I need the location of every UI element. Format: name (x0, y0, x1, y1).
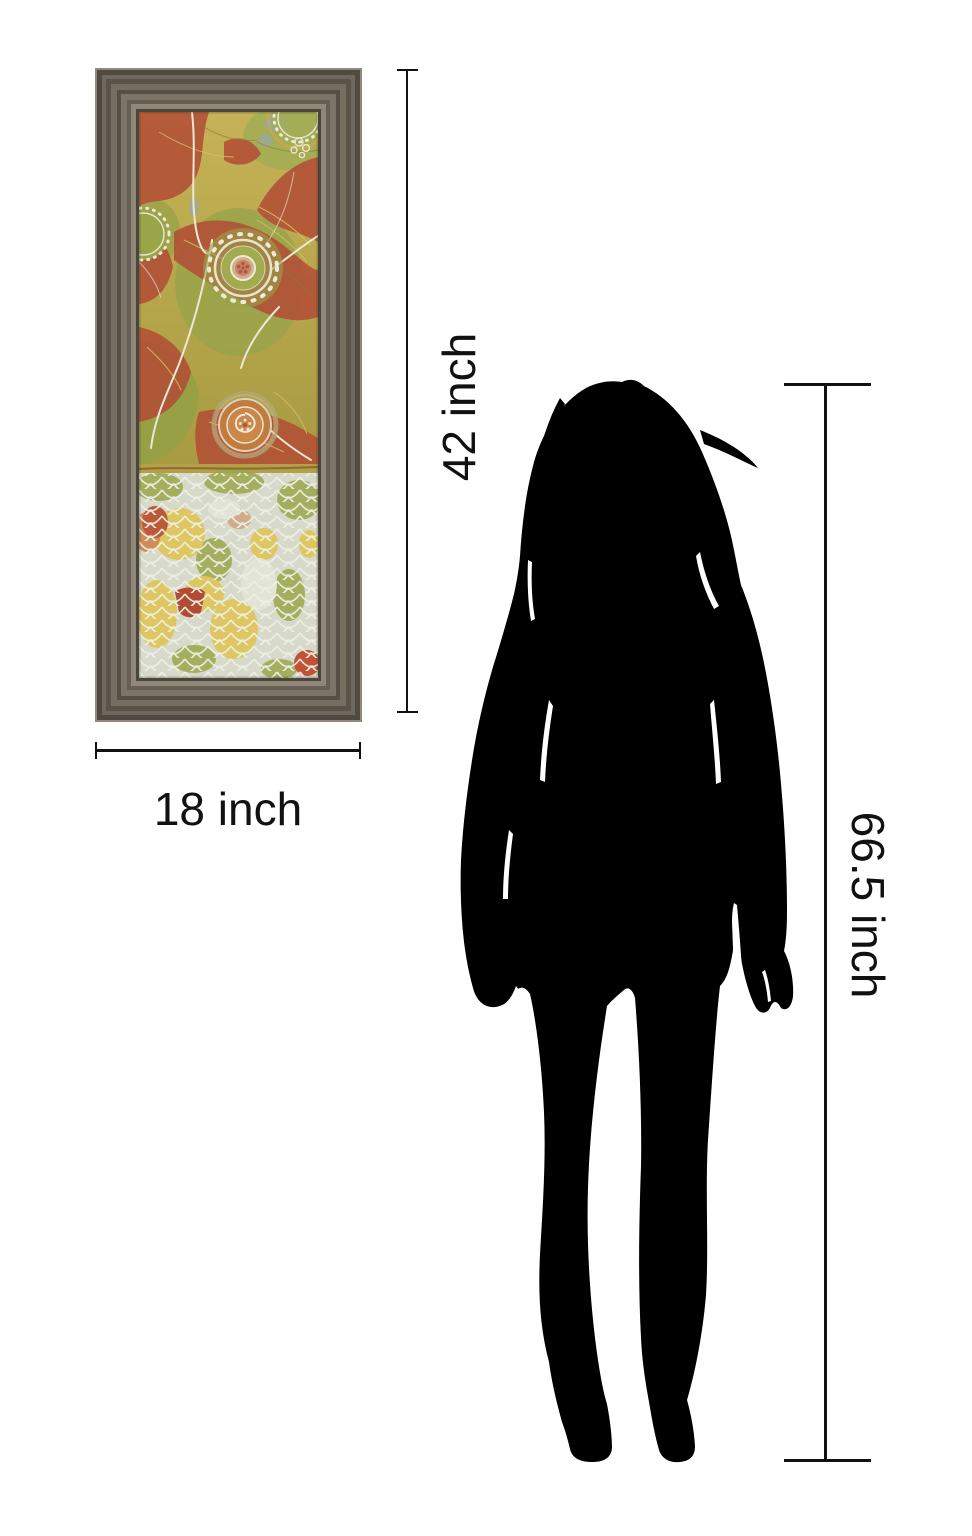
art-height-line (406, 70, 408, 712)
picture-frame (95, 68, 362, 722)
product-dimension-diagram: 42 inch 18 inch (0, 0, 972, 1536)
art-width-left-tick (95, 742, 97, 759)
art-height-top-tick (397, 69, 418, 71)
person-height-top-tick (784, 383, 871, 386)
art-height-bottom-tick (397, 711, 418, 713)
art-width-right-tick (359, 742, 361, 759)
art-width-line (95, 749, 361, 752)
artwork-canvas (139, 112, 318, 678)
art-width-label: 18 inch (154, 786, 302, 832)
framed-artwork (95, 68, 362, 722)
person-height-bottom-tick (784, 1459, 871, 1462)
person-height-label: 66.5 inch (845, 812, 891, 999)
woman-silhouette (450, 375, 795, 1470)
person-height-line (824, 384, 827, 1461)
